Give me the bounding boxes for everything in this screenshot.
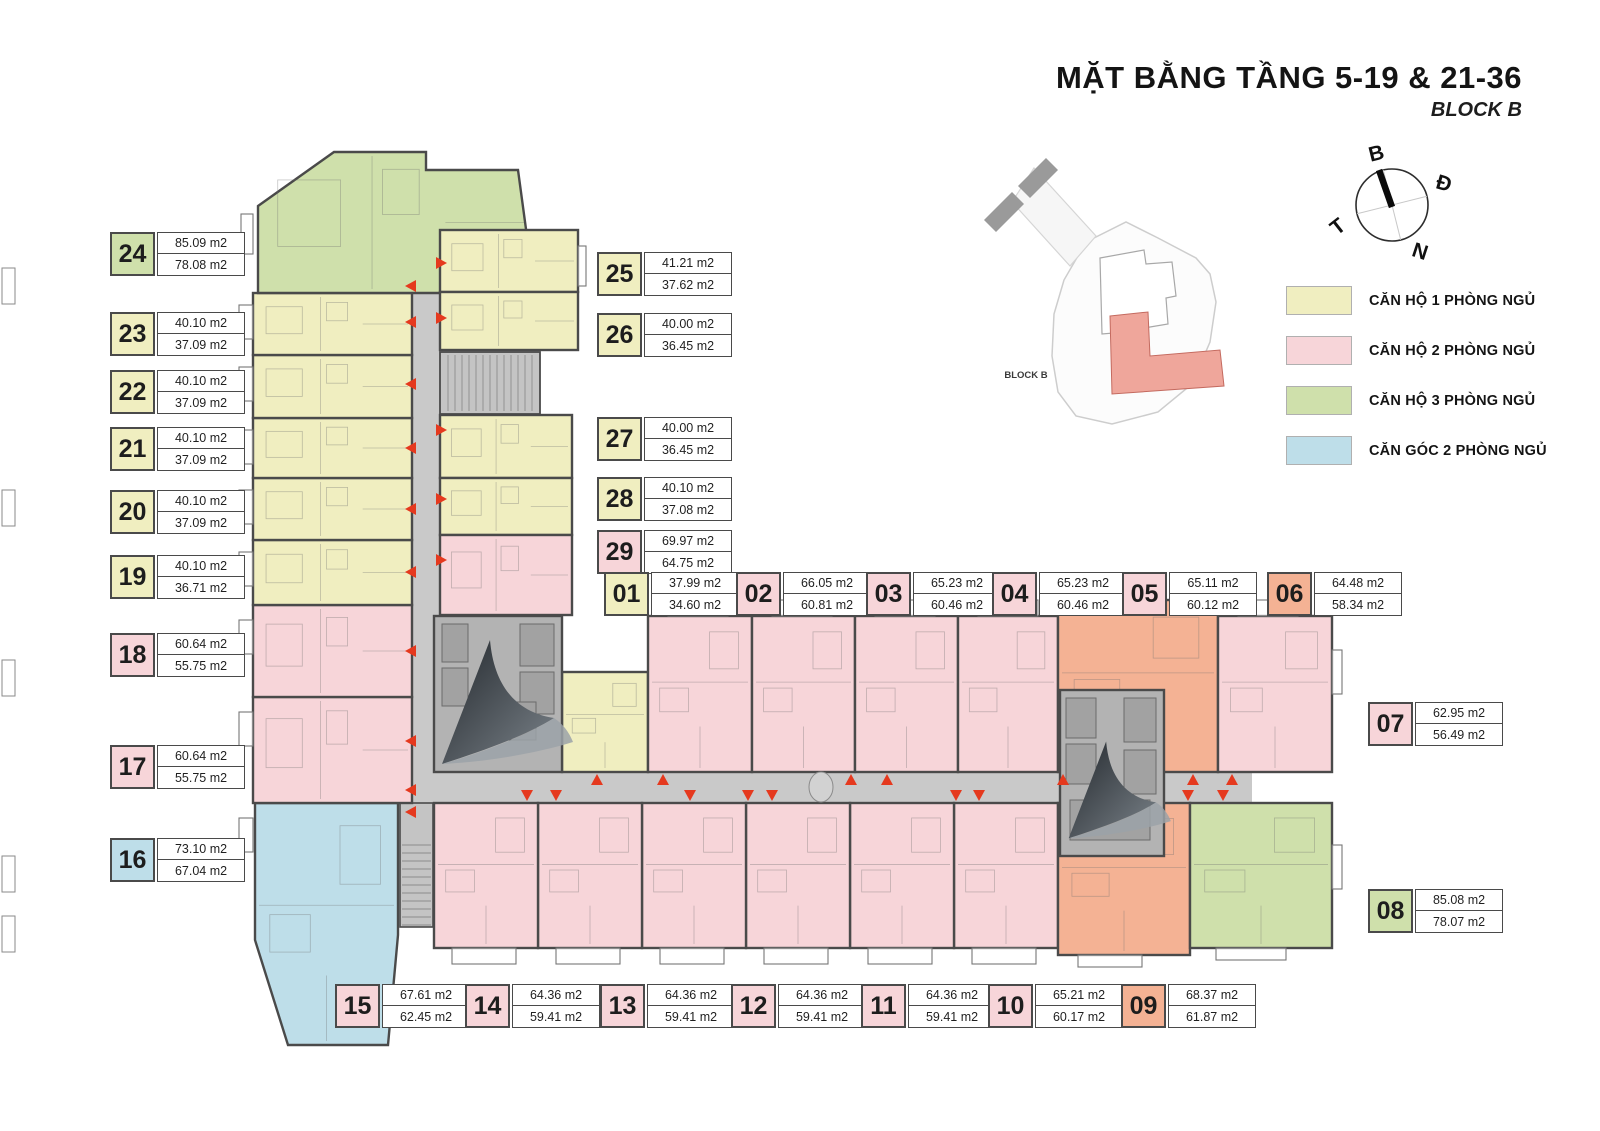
page-title: MẶT BẰNG TẦNG 5-19 & 21-36 <box>1056 60 1522 96</box>
unit-label-29: 2969.97 m264.75 m2 <box>597 530 732 574</box>
legend-label: CĂN HỘ 3 PHÒNG NGỦ <box>1369 393 1535 409</box>
unit-area: 65.23 m2 <box>1039 572 1127 595</box>
unit-area: 41.21 m2 <box>644 252 732 275</box>
legend-swatch <box>1286 336 1352 365</box>
unit-number: 29 <box>597 530 642 574</box>
unit-area: 60.12 m2 <box>1169 593 1257 616</box>
compass-north-label: B <box>1366 141 1386 167</box>
unit-label-13: 1364.36 m259.41 m2 <box>600 984 735 1028</box>
compass-rose: BĐTN <box>1326 141 1454 265</box>
unit-areas: 64.36 m259.41 m2 <box>512 984 600 1028</box>
unit-areas: 40.10 m237.09 m2 <box>157 490 245 534</box>
unit-area: 36.45 m2 <box>644 334 732 357</box>
unit-number: 01 <box>604 572 649 616</box>
unit-label-14: 1464.36 m259.41 m2 <box>465 984 600 1028</box>
page-subtitle: BLOCK B <box>1056 99 1522 122</box>
unit-area: 37.99 m2 <box>651 572 739 595</box>
unit-area: 67.61 m2 <box>382 984 470 1007</box>
unit-number: 26 <box>597 313 642 357</box>
unit-label-25: 2541.21 m237.62 m2 <box>597 252 732 296</box>
unit-areas: 40.00 m236.45 m2 <box>644 313 732 357</box>
unit-area: 36.71 m2 <box>157 576 245 599</box>
unit-number: 11 <box>861 984 906 1028</box>
unit-label-20: 2040.10 m237.09 m2 <box>110 490 245 534</box>
legend-label: CĂN HỘ 2 PHÒNG NGỦ <box>1369 343 1535 359</box>
title-block: MẶT BẰNG TẦNG 5-19 & 21-36 BLOCK B <box>1056 60 1522 122</box>
unit-areas: 40.10 m237.09 m2 <box>157 427 245 471</box>
unit-area: 62.95 m2 <box>1415 702 1503 725</box>
unit-area: 60.46 m2 <box>913 593 1001 616</box>
unit-number: 03 <box>866 572 911 616</box>
unit-area: 55.75 m2 <box>157 766 245 789</box>
unit-area: 40.10 m2 <box>157 312 245 335</box>
unit-label-28: 2840.10 m237.08 m2 <box>597 477 732 521</box>
unit-areas: 67.61 m262.45 m2 <box>382 984 470 1028</box>
unit-areas: 62.95 m256.49 m2 <box>1415 702 1503 746</box>
unit-areas: 65.11 m260.12 m2 <box>1169 572 1257 616</box>
unit-label-23: 2340.10 m237.09 m2 <box>110 312 245 356</box>
unit-area: 67.04 m2 <box>157 859 245 882</box>
unit-areas: 40.10 m237.09 m2 <box>157 312 245 356</box>
unit-areas: 85.08 m278.07 m2 <box>1415 889 1503 933</box>
unit-label-26: 2640.00 m236.45 m2 <box>597 313 732 357</box>
unit-label-18: 1860.64 m255.75 m2 <box>110 633 245 677</box>
unit-label-27: 2740.00 m236.45 m2 <box>597 417 732 461</box>
unit-number: 08 <box>1368 889 1413 933</box>
unit-area: 59.41 m2 <box>778 1005 866 1028</box>
unit-number: 16 <box>110 838 155 882</box>
unit-number: 20 <box>110 490 155 534</box>
unit-areas: 68.37 m261.87 m2 <box>1168 984 1256 1028</box>
unit-label-15: 1567.61 m262.45 m2 <box>335 984 470 1028</box>
unit-area: 37.09 m2 <box>157 333 245 356</box>
unit-area: 68.37 m2 <box>1168 984 1256 1007</box>
unit-label-08: 0885.08 m278.07 m2 <box>1368 889 1503 933</box>
compass-east-label: Đ <box>1433 171 1454 197</box>
unit-area: 37.08 m2 <box>644 498 732 521</box>
unit-area: 65.23 m2 <box>913 572 1001 595</box>
unit-number: 22 <box>110 370 155 414</box>
unit-areas: 85.09 m278.08 m2 <box>157 232 245 276</box>
unit-number: 06 <box>1267 572 1312 616</box>
unit-area: 36.45 m2 <box>644 438 732 461</box>
site-map: BLOCK B <box>948 146 1248 436</box>
unit-number: 05 <box>1122 572 1167 616</box>
unit-label-06: 0664.48 m258.34 m2 <box>1267 572 1402 616</box>
unit-area: 40.10 m2 <box>157 427 245 450</box>
legend-swatch <box>1286 386 1352 415</box>
legend-item-3: CĂN GÓC 2 PHÒNG NGỦ <box>1286 436 1547 465</box>
unit-label-12: 1264.36 m259.41 m2 <box>731 984 866 1028</box>
unit-areas: 40.00 m236.45 m2 <box>644 417 732 461</box>
unit-area: 40.10 m2 <box>157 490 245 513</box>
unit-area: 55.75 m2 <box>157 654 245 677</box>
legend-swatch <box>1286 286 1352 315</box>
unit-number: 02 <box>736 572 781 616</box>
unit-areas: 65.21 m260.17 m2 <box>1035 984 1123 1028</box>
unit-label-07: 0762.95 m256.49 m2 <box>1368 702 1503 746</box>
unit-area: 85.09 m2 <box>157 232 245 255</box>
unit-number: 18 <box>110 633 155 677</box>
unit-label-01: 0137.99 m234.60 m2 <box>604 572 739 616</box>
unit-area: 60.17 m2 <box>1035 1005 1123 1028</box>
compass-icon: BĐTN <box>1322 140 1472 268</box>
compass-south-label: N <box>1409 239 1431 266</box>
legend-label: CĂN GÓC 2 PHÒNG NGỦ <box>1369 443 1547 459</box>
unit-area: 59.41 m2 <box>512 1005 600 1028</box>
unit-area: 60.64 m2 <box>157 745 245 768</box>
unit-area: 40.00 m2 <box>644 313 732 336</box>
unit-area: 66.05 m2 <box>783 572 871 595</box>
unit-label-02: 0266.05 m260.81 m2 <box>736 572 871 616</box>
unit-label-10: 1065.21 m260.17 m2 <box>988 984 1123 1028</box>
unit-number: 17 <box>110 745 155 789</box>
unit-area: 34.60 m2 <box>651 593 739 616</box>
site-block-b-label: BLOCK B <box>1004 370 1047 381</box>
unit-area: 64.36 m2 <box>908 984 996 1007</box>
unit-area: 85.08 m2 <box>1415 889 1503 912</box>
unit-area: 37.09 m2 <box>157 391 245 414</box>
unit-areas: 64.36 m259.41 m2 <box>778 984 866 1028</box>
unit-area: 60.46 m2 <box>1039 593 1127 616</box>
unit-number: 25 <box>597 252 642 296</box>
unit-label-16: 1673.10 m267.04 m2 <box>110 838 245 882</box>
unit-number: 24 <box>110 232 155 276</box>
unit-label-19: 1940.10 m236.71 m2 <box>110 555 245 599</box>
legend-label: CĂN HỘ 1 PHÒNG NGỦ <box>1369 293 1535 309</box>
unit-area: 59.41 m2 <box>908 1005 996 1028</box>
unit-area: 64.48 m2 <box>1314 572 1402 595</box>
unit-number: 14 <box>465 984 510 1028</box>
unit-label-11: 1164.36 m259.41 m2 <box>861 984 996 1028</box>
unit-number: 12 <box>731 984 776 1028</box>
unit-areas: 37.99 m234.60 m2 <box>651 572 739 616</box>
unit-label-17: 1760.64 m255.75 m2 <box>110 745 245 789</box>
legend-item-0: CĂN HỘ 1 PHÒNG NGỦ <box>1286 286 1547 315</box>
site-entry-arrow <box>984 192 1024 232</box>
unit-number: 28 <box>597 477 642 521</box>
unit-areas: 66.05 m260.81 m2 <box>783 572 871 616</box>
unit-area: 37.09 m2 <box>157 448 245 471</box>
unit-areas: 41.21 m237.62 m2 <box>644 252 732 296</box>
unit-area: 59.41 m2 <box>647 1005 735 1028</box>
unit-area: 40.10 m2 <box>157 555 245 578</box>
unit-area: 40.10 m2 <box>157 370 245 393</box>
unit-label-22: 2240.10 m237.09 m2 <box>110 370 245 414</box>
unit-label-05: 0565.11 m260.12 m2 <box>1122 572 1257 616</box>
unit-area: 78.07 m2 <box>1415 910 1503 933</box>
unit-label-24: 2485.09 m278.08 m2 <box>110 232 245 276</box>
unit-number: 27 <box>597 417 642 461</box>
legend: CĂN HỘ 1 PHÒNG NGỦCĂN HỘ 2 PHÒNG NGỦCĂN … <box>1286 286 1547 486</box>
unit-area: 78.08 m2 <box>157 253 245 276</box>
compass-west-label: T <box>1326 214 1350 240</box>
unit-label-21: 2140.10 m237.09 m2 <box>110 427 245 471</box>
unit-area: 60.81 m2 <box>783 593 871 616</box>
unit-area: 62.45 m2 <box>382 1005 470 1028</box>
unit-areas: 64.48 m258.34 m2 <box>1314 572 1402 616</box>
unit-area: 58.34 m2 <box>1314 593 1402 616</box>
legend-item-1: CĂN HỘ 2 PHÒNG NGỦ <box>1286 336 1547 365</box>
unit-number: 10 <box>988 984 1033 1028</box>
legend-swatch <box>1286 436 1352 465</box>
unit-number: 15 <box>335 984 380 1028</box>
unit-area: 56.49 m2 <box>1415 723 1503 746</box>
unit-area: 60.64 m2 <box>157 633 245 656</box>
unit-areas: 60.64 m255.75 m2 <box>157 745 245 789</box>
unit-area: 61.87 m2 <box>1168 1005 1256 1028</box>
unit-area: 69.97 m2 <box>644 530 732 553</box>
unit-areas: 65.23 m260.46 m2 <box>1039 572 1127 616</box>
unit-number: 04 <box>992 572 1037 616</box>
unit-number: 19 <box>110 555 155 599</box>
unit-label-03: 0365.23 m260.46 m2 <box>866 572 1001 616</box>
unit-areas: 40.10 m237.08 m2 <box>644 477 732 521</box>
unit-area: 64.75 m2 <box>644 551 732 574</box>
unit-number: 21 <box>110 427 155 471</box>
unit-label-09: 0968.37 m261.87 m2 <box>1121 984 1256 1028</box>
unit-number: 13 <box>600 984 645 1028</box>
unit-area: 37.62 m2 <box>644 273 732 296</box>
unit-number: 07 <box>1368 702 1413 746</box>
unit-areas: 73.10 m267.04 m2 <box>157 838 245 882</box>
unit-area: 40.00 m2 <box>644 417 732 440</box>
unit-areas: 40.10 m237.09 m2 <box>157 370 245 414</box>
unit-areas: 64.36 m259.41 m2 <box>908 984 996 1028</box>
unit-area: 65.11 m2 <box>1169 572 1257 595</box>
unit-areas: 64.36 m259.41 m2 <box>647 984 735 1028</box>
floor-plan-page: 2485.09 m278.08 m22340.10 m237.09 m22240… <box>0 0 1600 1131</box>
site-outline: BLOCK B <box>984 158 1224 424</box>
unit-number: 09 <box>1121 984 1166 1028</box>
unit-area: 64.36 m2 <box>647 984 735 1007</box>
unit-areas: 69.97 m264.75 m2 <box>644 530 732 574</box>
unit-area: 73.10 m2 <box>157 838 245 861</box>
unit-areas: 60.64 m255.75 m2 <box>157 633 245 677</box>
unit-area: 37.09 m2 <box>157 511 245 534</box>
unit-area: 40.10 m2 <box>644 477 732 500</box>
unit-area: 64.36 m2 <box>512 984 600 1007</box>
unit-area: 65.21 m2 <box>1035 984 1123 1007</box>
unit-area: 64.36 m2 <box>778 984 866 1007</box>
unit-areas: 65.23 m260.46 m2 <box>913 572 1001 616</box>
unit-label-04: 0465.23 m260.46 m2 <box>992 572 1127 616</box>
legend-item-2: CĂN HỘ 3 PHÒNG NGỦ <box>1286 386 1547 415</box>
unit-number: 23 <box>110 312 155 356</box>
unit-areas: 40.10 m236.71 m2 <box>157 555 245 599</box>
